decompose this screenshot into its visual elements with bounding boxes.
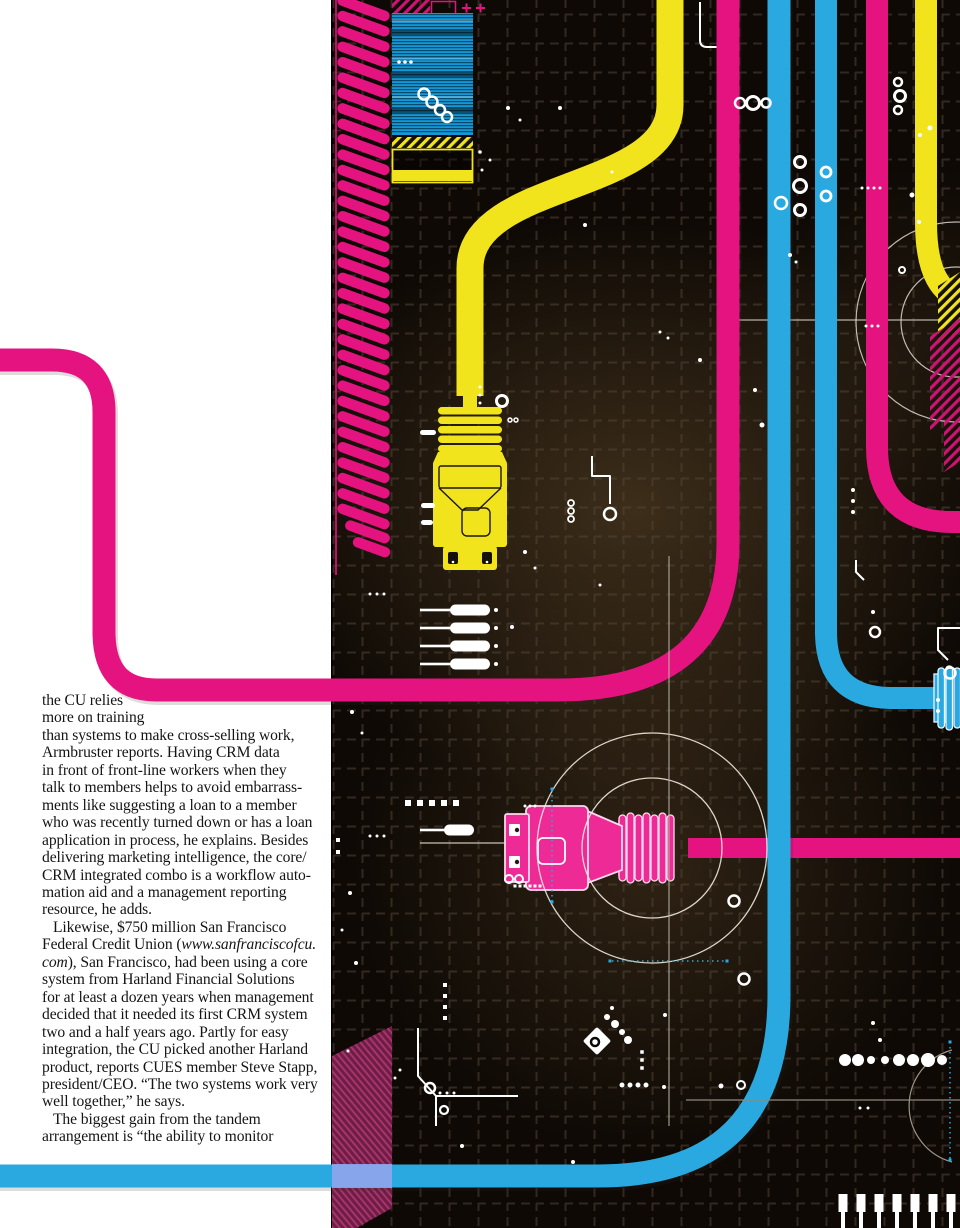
article-line: arrangement is “the ability to monitor [42, 1128, 342, 1145]
article-line: the CU relies [42, 692, 342, 709]
article-line: product, reports CUES member Steve Stapp… [42, 1059, 342, 1076]
article-line: Likewise, $750 million San Francisco [42, 919, 342, 936]
article-line: more on training [42, 709, 342, 726]
article-line: system from Harland Financial Solutions [42, 971, 342, 988]
article-line: integration, the CU picked another Harla… [42, 1041, 342, 1058]
article-line: two and a half years ago. Partly for eas… [42, 1024, 342, 1041]
article-line: president/CEO. “The two systems work ver… [42, 1076, 342, 1093]
article-text-column: the CU reliesmore on trainingthan system… [42, 692, 342, 1146]
article-line: delivering marketing intelligence, the c… [42, 849, 342, 866]
article-line: Federal Credit Union (www.sanfranciscofc… [42, 936, 342, 953]
article-line: well together,” he says. [42, 1093, 342, 1110]
article-line: talk to members helps to avoid embarrass… [42, 779, 342, 796]
article-line: than systems to make cross-selling work, [42, 727, 342, 744]
article-line: application in process, he explains. Bes… [42, 832, 342, 849]
article-line: The biggest gain from the tandem [42, 1111, 342, 1128]
circuit-board-panel [331, 0, 960, 1228]
article-line: Armbruster reports. Having CRM data [42, 744, 342, 761]
article-line: decided that it needed its first CRM sys… [42, 1006, 342, 1023]
article-line: in front of front-line workers when they [42, 762, 342, 779]
article-line: ments like suggesting a loan to a member [42, 797, 342, 814]
article-line: who was recently turned down or has a lo… [42, 814, 342, 831]
article-line: com), San Francisco, had been using a co… [42, 954, 342, 971]
article-line: mation aid and a management reporting [42, 884, 342, 901]
article-line: resource, he adds. [42, 901, 342, 918]
article-line: for at least a dozen years when manageme… [42, 989, 342, 1006]
article-line: CRM integrated combo is a workflow auto- [42, 867, 342, 884]
